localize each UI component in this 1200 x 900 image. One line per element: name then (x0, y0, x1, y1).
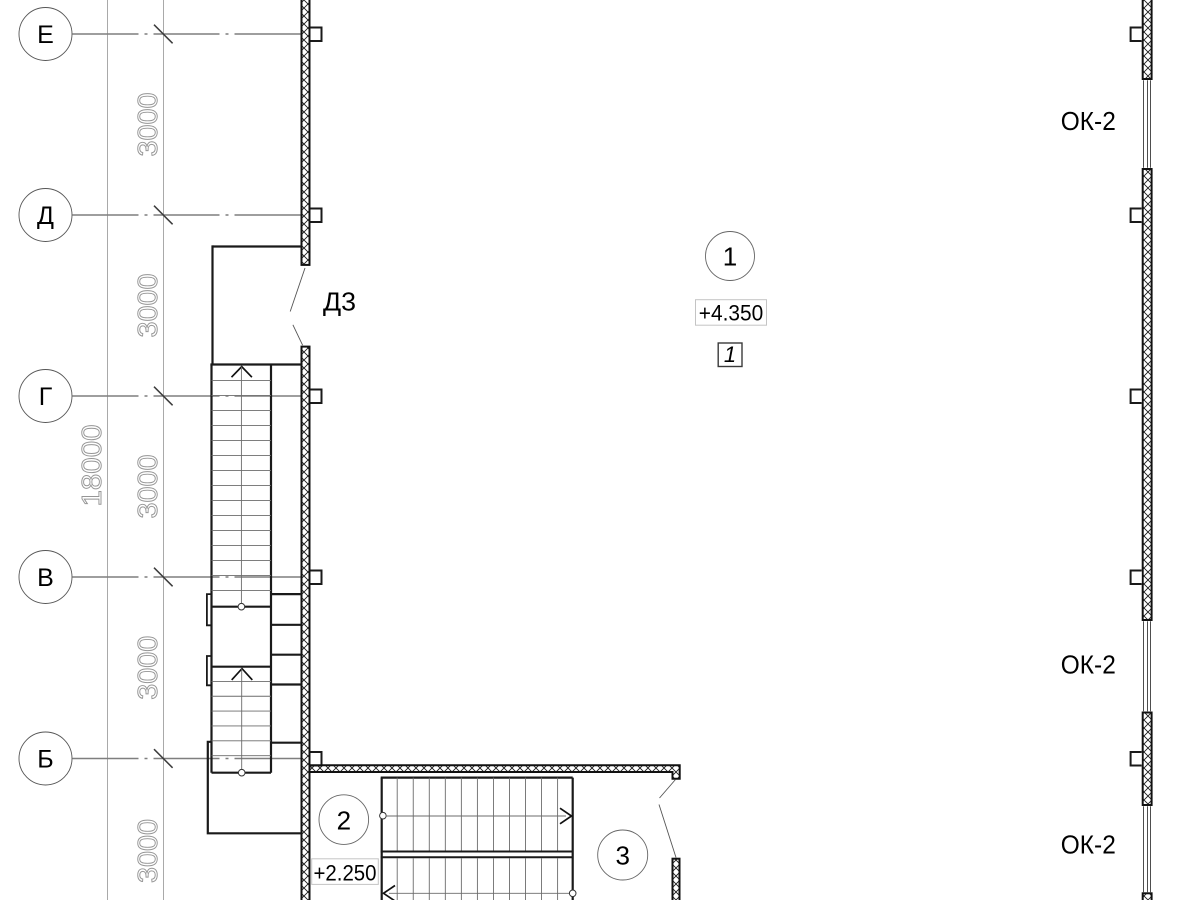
svg-text:ОК-2: ОК-2 (1061, 106, 1116, 136)
svg-text:1: 1 (724, 342, 736, 367)
svg-text:3000: 3000 (132, 93, 163, 157)
svg-text:1: 1 (723, 241, 737, 271)
svg-text:Г: Г (39, 383, 53, 411)
svg-text:18000: 18000 (76, 425, 107, 507)
svg-text:+4.350: +4.350 (699, 300, 764, 325)
svg-text:3000: 3000 (132, 819, 163, 883)
svg-text:Е: Е (37, 21, 54, 49)
svg-text:3: 3 (615, 840, 629, 870)
svg-text:2: 2 (337, 805, 351, 835)
svg-text:Д3: Д3 (323, 287, 356, 317)
svg-text:3000: 3000 (132, 274, 163, 338)
svg-text:3000: 3000 (132, 636, 163, 700)
svg-text:3000: 3000 (132, 455, 163, 519)
svg-text:ОК-2: ОК-2 (1061, 650, 1116, 680)
svg-text:Б: Б (37, 746, 53, 774)
svg-text:Д: Д (37, 202, 54, 230)
svg-text:+2.250: +2.250 (314, 860, 377, 885)
svg-text:ОК-2: ОК-2 (1061, 830, 1116, 860)
svg-text:В: В (37, 564, 54, 592)
